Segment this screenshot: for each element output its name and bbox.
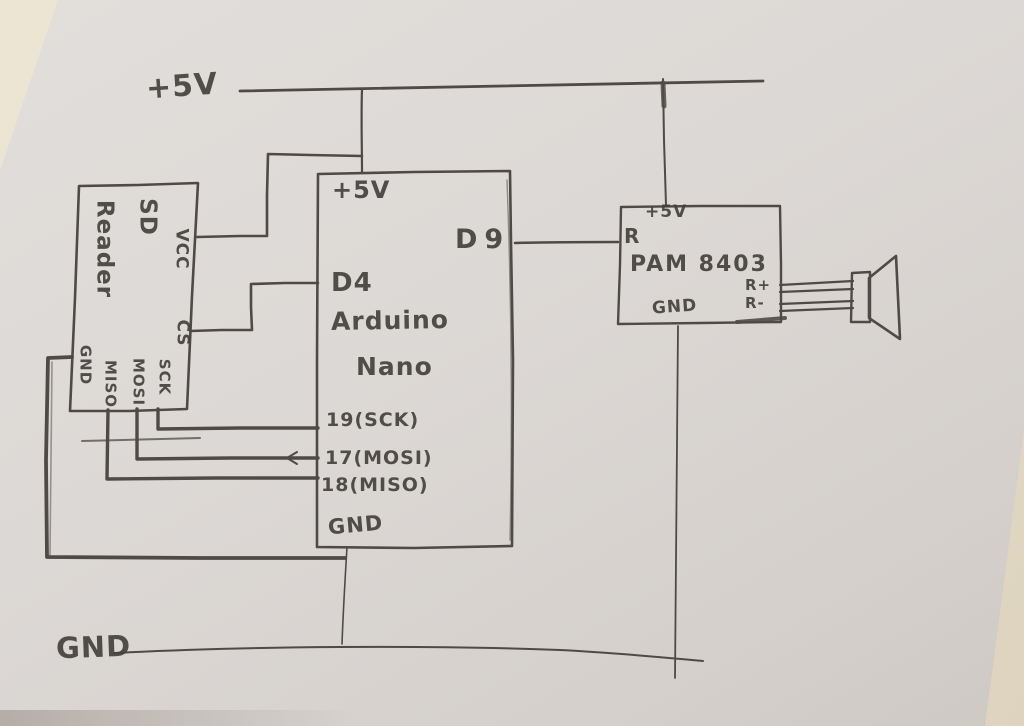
arduino-pin-18-miso-label: 18(MISO) [321,476,429,495]
arduino-pin-d9-label: D9 [455,226,510,253]
wire-rplus-b [780,289,853,292]
arduino-pin-17-mosi-label: 17(MOSI) [325,449,433,468]
sd-reader-pin-sck-label: SCK [157,359,172,395]
wire-rminus-b [780,308,853,311]
pam8403-pin-rminus-label: R- [745,296,765,311]
wire-rplus-a [780,281,853,285]
top-rail-5v-label: +5V [145,70,219,105]
wire-arduino-gnd-drop [342,547,347,644]
sd-reader-pin-gnd-label: GND [78,345,93,385]
sd-reader-pin-vcc-label: VCC [173,228,190,269]
arduino-pin-5v-label: +5V [332,178,390,202]
erased-pencil-line [82,438,200,441]
pam8403-pin-rplus-label: R+ [745,278,771,293]
photo-of-schematic: +5V GND SD Reader VCC CS SCK MOSI MISO G… [0,0,1024,726]
arduino-pin-gnd-label: GND [327,513,384,539]
wire-sd-mosi-to-17 [137,409,318,459]
speaker-icon-cone [869,256,900,339]
speaker-icon-body [851,272,870,322]
sd-reader-pin-mosi-label: MOSI [131,358,146,406]
wire-5v-to-pam8403-overdraw [663,83,664,106]
wire-top-5v-rail [240,81,763,91]
wire-sd-cs-to-d4 [190,283,318,331]
sd-reader-pin-miso-label: MISO [103,360,118,408]
pam8403-title: PAM 8403 [630,254,768,276]
arduino-pin-d4-label: D4 [331,270,373,296]
sd-reader-title-reader: Reader [93,200,116,298]
arduino-pin-19-sck-label: 19(SCK) [326,411,419,430]
wire-sd-gnd-overdraw [50,362,52,555]
bottom-rail-gnd-label: GND [56,632,132,664]
pam8403-pin-5v-label: +5V [645,204,687,221]
wire-pam-gnd-drop [675,326,678,678]
sd-reader-pin-cs-label: CS [174,319,191,346]
arduino-title-line2: Nano [356,354,433,379]
pam8403-pin-gnd-label: GND [651,297,697,317]
pam8403-pin-r-label: R [624,226,640,246]
wire-rminus-a [780,301,853,304]
wire-d9-to-r [515,242,618,243]
wire-bottom-gnd-rail [115,647,703,661]
wire-sd-sck-to-19 [158,409,318,429]
arduino-title-line1: Arduino [331,307,449,334]
sd-reader-title-sd: SD [136,198,159,236]
schematic-wiring [0,0,1024,726]
